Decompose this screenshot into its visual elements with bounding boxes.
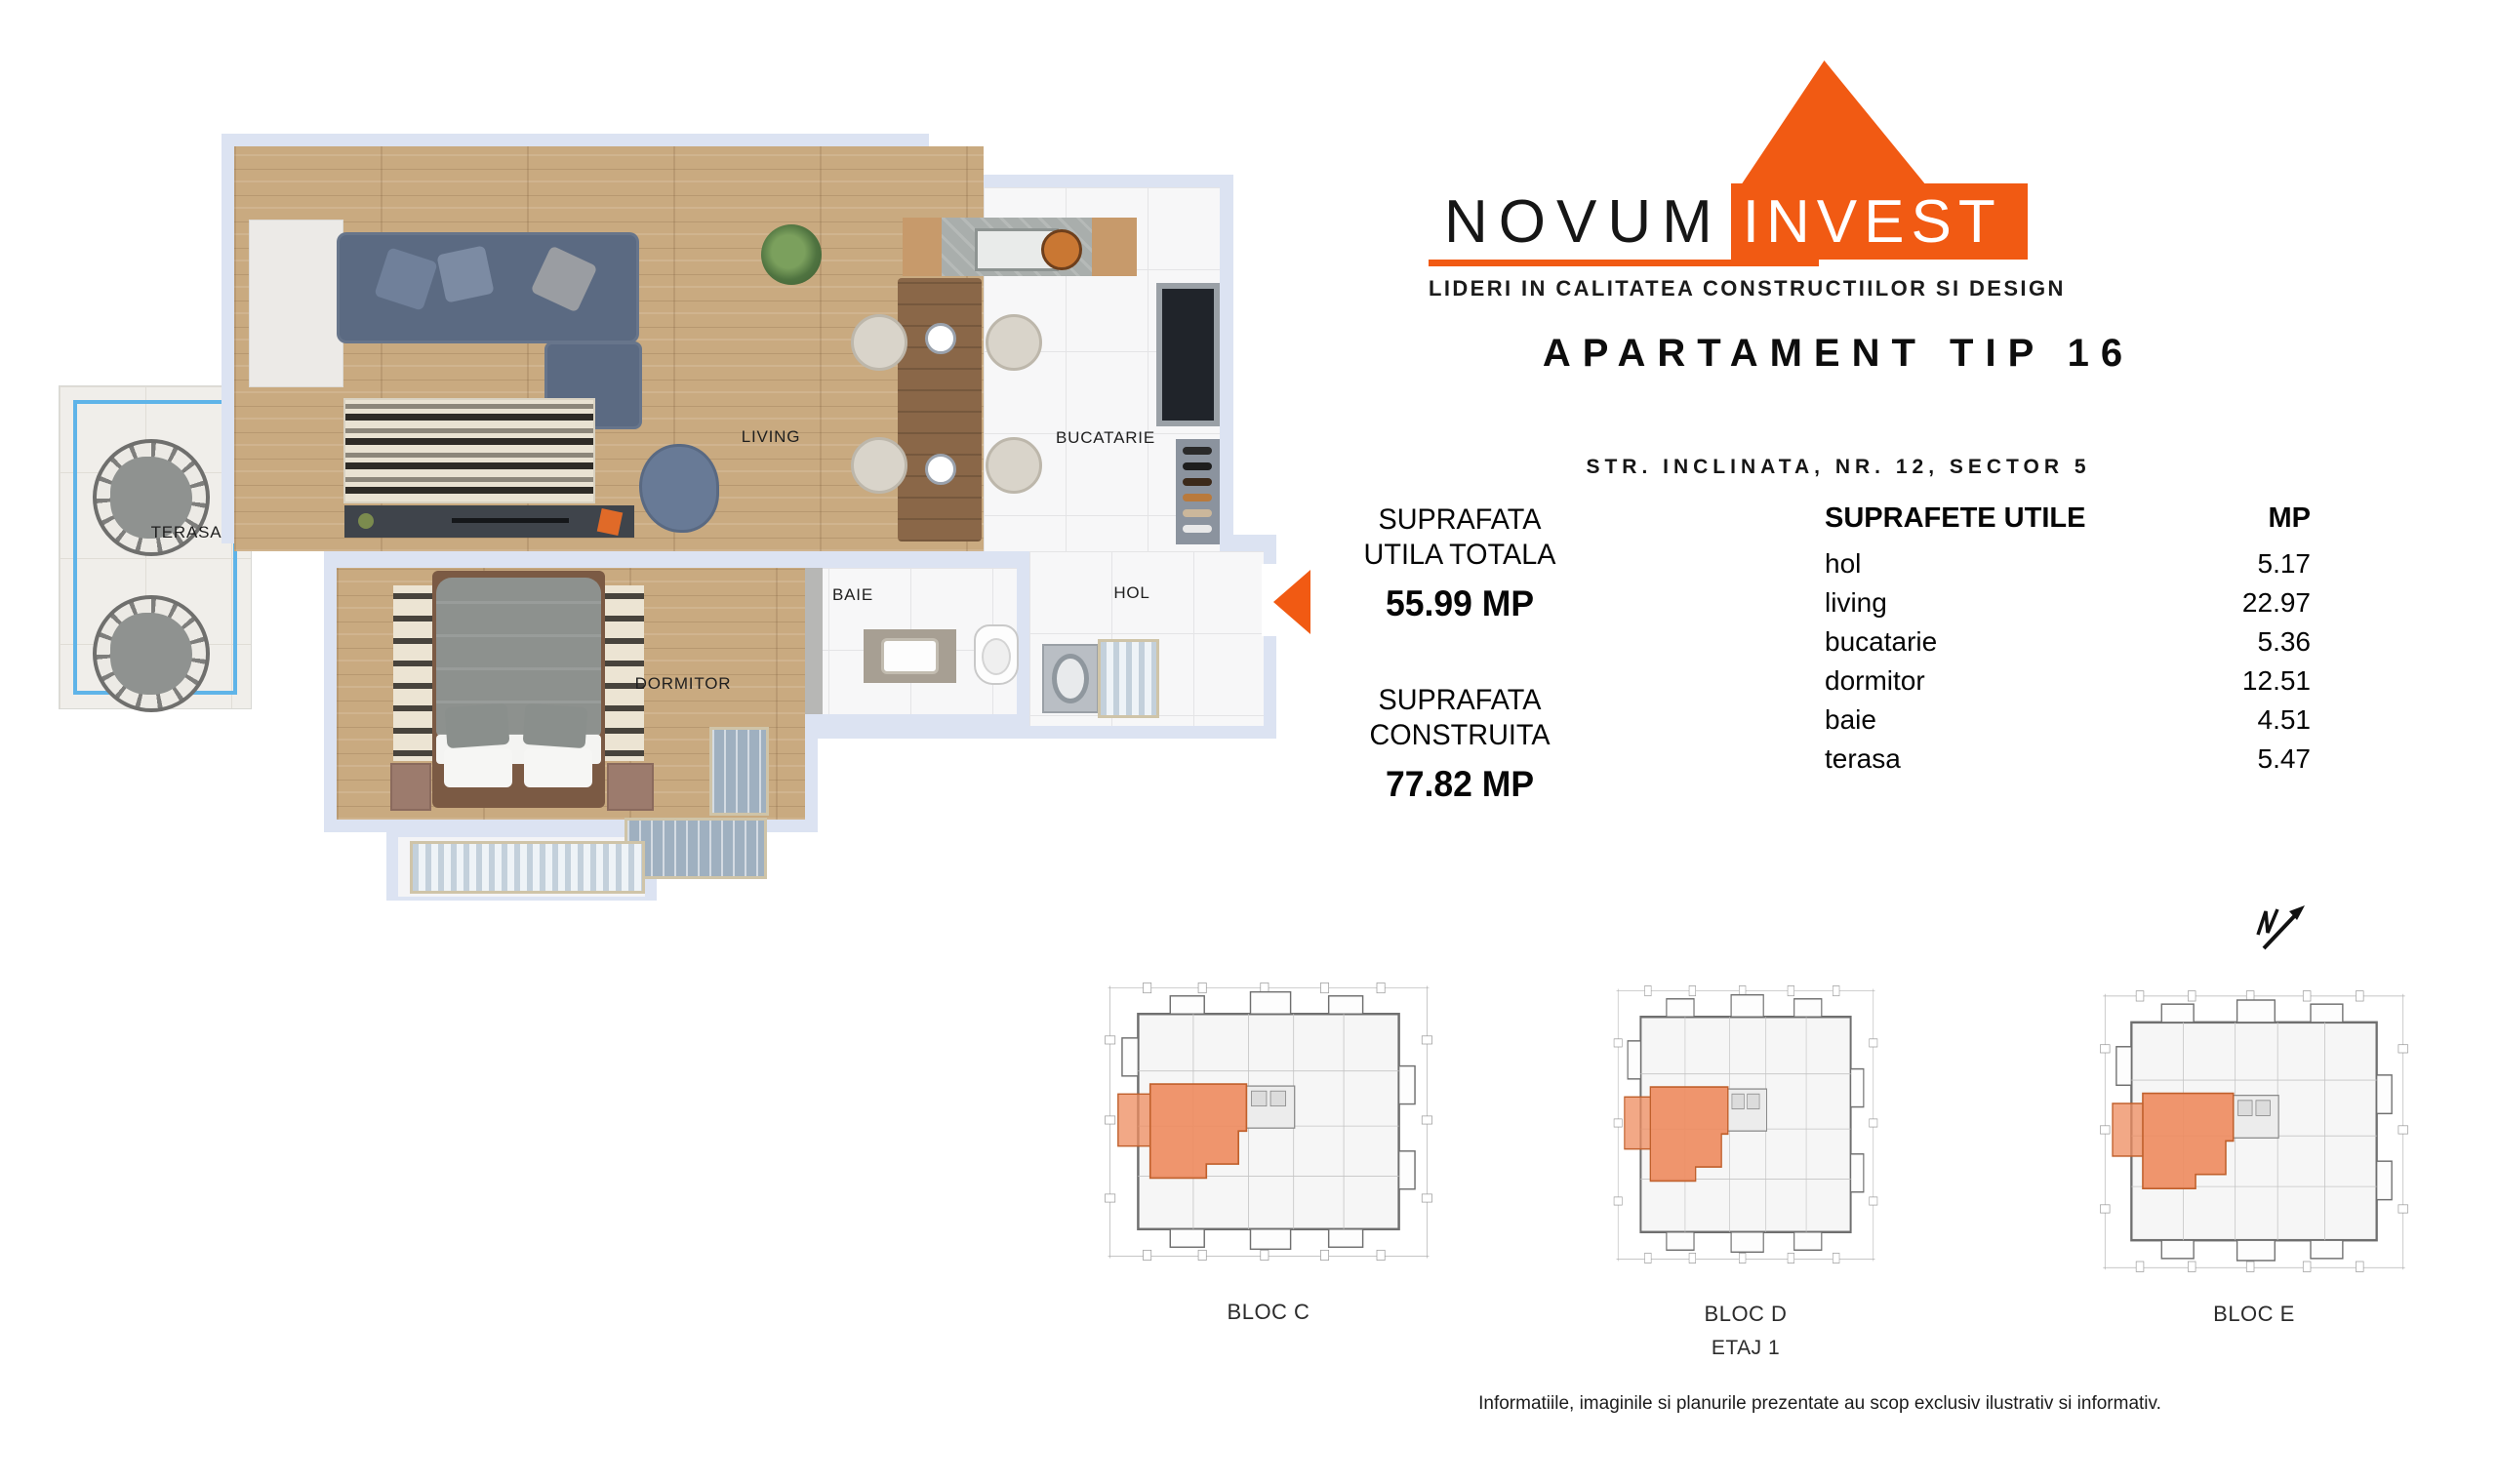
disclaimer-text: Informatiile, imaginile si planurile pre… [1425,1393,2215,1415]
plate [925,454,956,485]
block-label-e: BLOC E [2156,1302,2352,1327]
terasa-chair [93,595,210,712]
room-label-dormitor: DORMITOR [615,674,751,694]
block-plan-bloc-c [1088,966,1449,1276]
surfaces-title: SUPRAFETE UTILE [1825,502,2085,535]
logo-text-novum: NOVUM [1444,187,1731,257]
counter-wood-end [903,218,942,276]
table-row: bucatarie 5.36 [1825,619,2311,658]
table-row: baie 4.51 [1825,697,2311,736]
north-arrow-icon [2250,900,2309,954]
block-plan-bloc-e [2084,974,2424,1288]
row-label: bucatarie [1825,626,1937,658]
shoes [1183,494,1212,501]
washer-drum [1052,654,1089,703]
row-label: terasa [1825,743,1901,775]
floor-label: ETAJ 1 [1648,1337,1843,1360]
shoes [1183,509,1212,517]
room-label-baie: BAIE [814,585,892,605]
useful-area-label-line1: SUPRAFATA [1350,502,1571,538]
bed-pillow [523,703,588,748]
bathroom-vanity [864,629,956,683]
room-label-bucatarie: BUCATARIE [1032,428,1179,448]
address: STR. INCLINATA, NR. 12, SECTOR 5 [1546,456,2131,479]
total-useful-area: SUPRAFATA UTILA TOTALA 55.99 MP [1350,502,1571,622]
side-table [249,220,343,387]
block-label-c: BLOC C [1171,1300,1366,1325]
nightstand [607,763,654,811]
bed-pillow [445,703,510,748]
built-area-value: 77.82 MP [1350,767,1571,802]
useful-area-value: 55.99 MP [1350,586,1571,622]
block-plan-bloc-d [1600,969,1891,1279]
logo-roof-icon [1741,60,1926,185]
built-area-label-line1: SUPRAFATA [1350,683,1571,718]
row-label: hol [1825,548,1861,580]
room-label-living: LIVING [712,427,829,447]
table-row: dormitor 12.51 [1825,658,2311,697]
useful-area-label-line2: UTILA TOTALA [1350,538,1571,573]
shoe-rack [1176,439,1220,544]
built-area: SUPRAFATA CONSTRUITA 77.82 MP [1350,683,1571,802]
row-label: baie [1825,704,1876,736]
row-value: 22.97 [2242,587,2311,619]
surfaces-table: SUPRAFETE UTILE MP hol 5.17 living 22.97… [1825,502,2311,775]
cooking-pot [1041,229,1082,270]
toilet [974,624,1019,685]
row-value: 4.51 [2258,704,2312,736]
bathroom-sink [881,638,939,674]
row-label: living [1825,587,1887,619]
armchair [639,444,719,533]
entrance-arrow-icon [1273,570,1310,634]
wardrobe [709,727,769,816]
dining-table [898,278,982,541]
block-plan-drawing [1600,969,1891,1279]
chair-seat [110,613,192,695]
surfaces-unit: MP [2269,502,2312,535]
dining-chair [851,437,907,494]
table-row: terasa 5.47 [1825,736,2311,775]
plate [925,323,956,354]
kitchen-counter [903,218,1137,276]
apartment-floorplan: LIVING BUCATARIE TERASA BAIE HOL DORMITO… [59,107,1278,917]
room-label-terasa: TERASA [128,523,245,542]
shoes [1183,525,1212,533]
orange-book-decor [597,508,624,536]
wardrobe [624,818,767,879]
hallway-closet [1098,639,1159,718]
shoes [1183,462,1212,470]
row-value: 12.51 [2242,665,2311,697]
table-row: hol 5.17 [1825,541,2311,580]
bed [432,571,605,808]
closet-unit [410,841,645,894]
block-plan-drawing [2084,974,2424,1288]
row-label: dormitor [1825,665,1925,697]
brand-tagline: LIDERI IN CALITATEA CONSTRUCTIILOR SI DE… [1429,276,2190,301]
highlighted-unit [1150,1084,1247,1178]
sofa-pillow [436,245,494,302]
living-rug [343,398,595,503]
brochure-canvas: LIVING BUCATARIE TERASA BAIE HOL DORMITO… [0,0,2498,1484]
shoes [1183,447,1212,455]
washing-machine [1042,644,1099,713]
shoes [1183,478,1212,486]
fridge-oven-unit [1156,283,1220,426]
toilet-lid [982,638,1011,675]
logo-text-invest: INVEST [1731,183,2028,260]
row-value: 5.47 [2258,743,2312,775]
highlighted-unit [1650,1087,1727,1181]
highlighted-unit [2143,1094,2234,1189]
table-row: living 22.97 [1825,580,2311,619]
bed-pillow [444,748,512,787]
dining-chair [851,314,907,371]
block-label-d: BLOC D [1648,1302,1843,1327]
block-plan-drawing [1088,966,1449,1276]
built-area-label-line2: CONSTRUITA [1350,718,1571,753]
brand-logo: NOVUM INVEST [1444,183,2028,260]
counter-wood-end [1092,218,1137,276]
bowl-decor [358,513,374,529]
row-value: 5.17 [2258,548,2312,580]
row-value: 5.36 [2258,626,2312,658]
surfaces-table-header: SUPRAFETE UTILE MP [1825,502,2311,535]
bed-pillow [524,748,592,787]
tv-console [344,505,634,538]
nightstand [390,763,431,811]
plant [761,224,822,285]
logo-underline [1429,260,1819,266]
tv-screen [452,518,569,523]
page-title: APARTAMENT TIP 16 [1497,332,2180,376]
room-label-hol: HOL [1083,583,1181,603]
dining-chair [986,314,1042,371]
